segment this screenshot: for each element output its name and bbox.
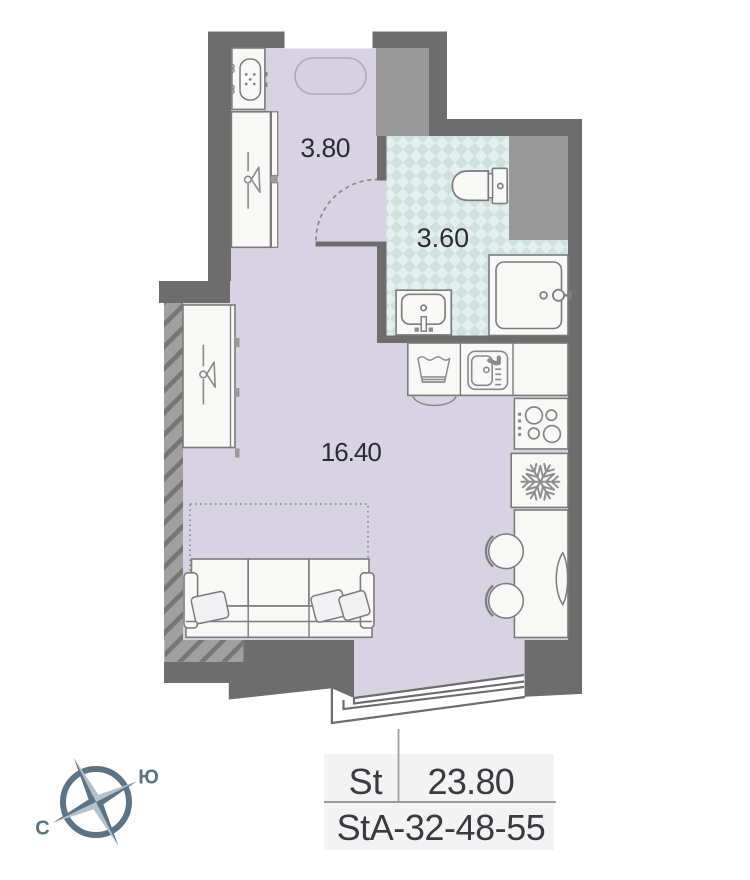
svg-text:3.80: 3.80: [300, 133, 350, 163]
svg-text:16.40: 16.40: [321, 437, 382, 467]
svg-text:С: С: [35, 818, 49, 840]
svg-text:St: St: [349, 761, 383, 802]
svg-text:Ю: Ю: [138, 767, 159, 789]
svg-text:StA-32-48-55: StA-32-48-55: [337, 807, 546, 848]
svg-text:3.60: 3.60: [417, 223, 470, 253]
svg-text:23.80: 23.80: [428, 761, 515, 802]
